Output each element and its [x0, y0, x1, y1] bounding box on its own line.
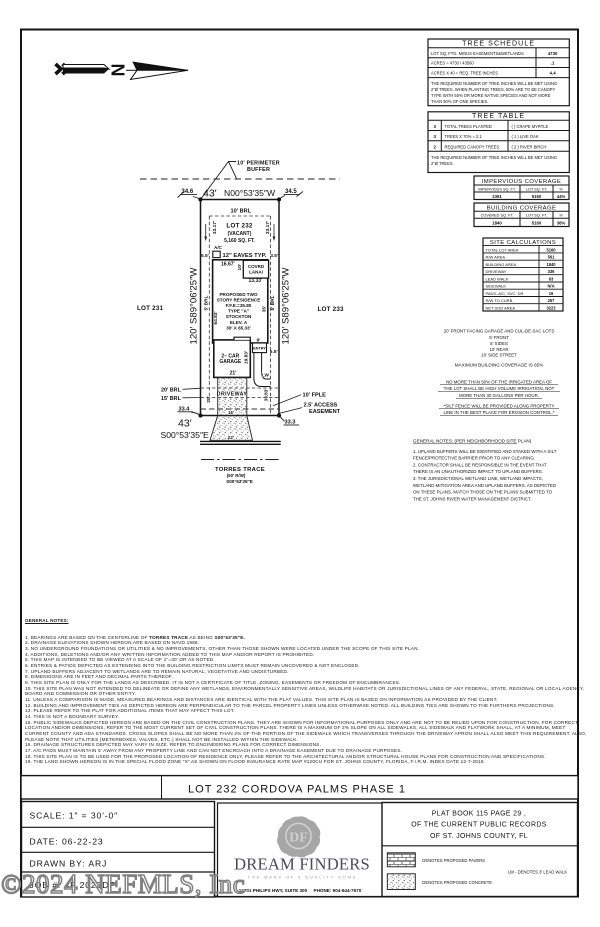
svg-text:THE REQUIRED NUMBER OF TREE IN: THE REQUIRED NUMBER OF TREE INCHES WILL … [431, 81, 557, 86]
svg-text:TREE TABLE: TREE TABLE [472, 113, 525, 120]
svg-text:STORY RESIDENCE: STORY RESIDENCE [217, 297, 261, 302]
svg-text:LINE IN THE BEST PLACE FOR ERO: LINE IN THE BEST PLACE FOR EROSION CONTR… [443, 410, 554, 415]
svg-text:DREAM FINDERS: DREAM FINDERS [234, 855, 370, 874]
svg-text:LOT 232 CORDOVA PALMS PHASE 1: LOT 232 CORDOVA PALMS PHASE 1 [188, 784, 406, 796]
svg-text:THE LOT SHALL BE HIGH VOLUME I: THE LOT SHALL BE HIGH VOLUME IRRIGATION,… [444, 386, 555, 391]
svg-text:ON THESE PLANS, MATCH THOSE ON: ON THESE PLANS, MATCH THOSE ON THE PLANS… [413, 490, 553, 495]
svg-text:16.67′: 16.67′ [221, 262, 236, 268]
svg-text:10′ REAR: 10′ REAR [489, 347, 508, 352]
svg-text:10′ SIDE STREET: 10′ SIDE STREET [481, 353, 517, 358]
svg-text:19.83′: 19.83′ [243, 350, 249, 364]
svg-text:DENOTES PROPOSED CONCRETE: DENOTES PROPOSED CONCRETE [422, 880, 492, 885]
svg-text:F.F.E.=35.80: F.F.E.=35.80 [226, 303, 252, 308]
svg-text:R/W TO CURB.: R/W TO CURB. [486, 298, 514, 303]
svg-text:ACRES X 40 = REQ. TREE INCHES: ACRES X 40 = REQ. TREE INCHES [431, 70, 498, 75]
svg-text:(50′ R/W): (50′ R/W) [227, 473, 246, 478]
svg-text:4730: 4730 [548, 51, 558, 56]
svg-text:DRIVEWAY: DRIVEWAY [486, 269, 507, 274]
svg-text:OF ST. JOHNS COUNTY, FL: OF ST. JOHNS COUNTY, FL [430, 833, 528, 840]
svg-text:16′: 16′ [228, 410, 234, 415]
svg-text:64.83′: 64.83′ [213, 311, 219, 325]
svg-text:A/C: A/C [214, 245, 223, 250]
svg-text:BUILDING COVERAGE: BUILDING COVERAGE [487, 206, 557, 212]
svg-text:(VACANT): (VACANT) [228, 231, 252, 237]
svg-text:TREES X 70% = 2.1: TREES X 70% = 2.1 [445, 134, 483, 139]
svg-text:5′ BRL: 5′ BRL [270, 295, 276, 310]
svg-text:THE REQUIRED NUMBER OF TREE IN: THE REQUIRED NUMBER OF TREE INCHES WILL … [431, 155, 557, 160]
svg-text:IMPERVIOUS SQ. FT.: IMPERVIOUS SQ. FT. [478, 188, 516, 192]
svg-text:120′ S89°06′25″W: 120′ S89°06′25″W [189, 267, 200, 345]
svg-text:DRAWN BY: ARJ: DRAWN BY: ARJ [30, 858, 108, 868]
svg-text:MORE THAN 30 GALLONS PER HOUR.: MORE THAN 30 GALLONS PER HOUR. [459, 393, 539, 398]
svg-text:5′ BRL: 5′ BRL [203, 295, 209, 310]
svg-text:N: N [108, 64, 128, 77]
svg-text:3. THE JURISDICTIONAL WETLAND: 3. THE JURISDICTIONAL WETLAND LINE, WETL… [413, 476, 543, 481]
svg-text:TOTAL TREES PLANTED: TOTAL TREES PLANTED [445, 124, 492, 129]
svg-text:33.17′: 33.17′ [212, 220, 218, 234]
svg-text:36%: 36% [557, 221, 566, 226]
svg-text:DF: DF [289, 831, 308, 846]
svg-text:257: 257 [548, 298, 556, 303]
svg-text:35′: 35′ [261, 305, 267, 312]
svg-text:2.5′ ACCESS: 2.5′ ACCESS [304, 403, 338, 409]
svg-text:STOCKTON: STOCKTON [226, 314, 252, 319]
svg-text:2. CONTRACTOR SHALL BE RESPONS: 2. CONTRACTOR SHALL BE RESPONSIBLE IN TH… [413, 462, 547, 467]
svg-text:561: 561 [548, 255, 556, 260]
svg-text:2″Ø TREES. WHEN PLANTING TREES: 2″Ø TREES. WHEN PLANTING TREES, 50% ARE … [431, 87, 555, 92]
svg-text:10′ FPLE: 10′ FPLE [303, 392, 327, 398]
svg-text:1. UPLAND BUFFERS WILL BE IDEN: 1. UPLAND BUFFERS WILL BE IDENTIFIED AND… [413, 449, 557, 454]
svg-text:LOT 232: LOT 232 [226, 223, 253, 230]
svg-text:LANAI: LANAI [249, 269, 263, 274]
svg-text:5160: 5160 [532, 221, 542, 226]
svg-text:*SILT FENCE WILL BE PROVIDED A: *SILT FENCE WILL BE PROVIDED ALONG PROPE… [444, 403, 555, 408]
svg-text:LOT 231: LOT 231 [137, 305, 164, 312]
svg-text:63: 63 [549, 277, 554, 282]
svg-text:THERE IS AN UNAUTHORIZED IMPAC: THERE IS AN UNAUTHORIZED IMPACT TO UPLAN… [413, 469, 543, 474]
svg-text:PROPOSED TWO: PROPOSED TWO [219, 292, 257, 297]
svg-text:43′: 43′ [203, 188, 217, 200]
svg-text:120′ S89°06′25″W: 120′ S89°06′25″W [281, 267, 292, 345]
svg-text:3.5′: 3.5′ [270, 253, 279, 259]
svg-text:LOT SQ. FT.: LOT SQ. FT. [526, 188, 547, 192]
svg-text:LW: LW [262, 373, 270, 378]
svg-text:16: 16 [549, 291, 554, 296]
svg-text:COVRD: COVRD [248, 264, 265, 269]
svg-text:DRIVEWAY: DRIVEWAY [217, 392, 248, 398]
svg-text:2361: 2361 [492, 194, 502, 199]
svg-text:NO MORE THAN 50% OF THE IRRIGA: NO MORE THAN 50% OF THE IRRIGATED AREA O… [446, 379, 552, 384]
svg-text:LOT 233: LOT 233 [318, 306, 345, 313]
svg-text:BUILDING AREA: BUILDING AREA [486, 262, 517, 267]
svg-text:WETLAND MITIGATION AREA AND UP: WETLAND MITIGATION AREA AND UPLAND BUFFE… [413, 483, 556, 488]
svg-text:THE ST. JOHNS RIVER WATER MANA: THE ST. JOHNS RIVER WATER MANAGEMENT DIS… [413, 496, 531, 501]
svg-text:14701 PHILIPS HWY, SUITE 300: 14701 PHILIPS HWY, SUITE 300 PHONE: 904-… [239, 888, 362, 893]
svg-text:PLAT BOOK 115 PAGE 29 ,: PLAT BOOK 115 PAGE 29 , [432, 811, 526, 818]
svg-text:SIDEWALK: SIDEWALK [486, 284, 507, 289]
svg-text:THAN 50% OF ONE SPECIES.: THAN 50% OF ONE SPECIES. [431, 99, 488, 104]
svg-text:S00°53′35″E: S00°53′35″E [161, 430, 209, 440]
svg-text:20′ FRONT FACING GARAGE AND CU: 20′ FRONT FACING GARAGE AND CUL-DE-SAC L… [444, 329, 555, 334]
svg-text:5.5′: 5.5′ [270, 349, 279, 355]
svg-text:TOTAL LOT AREA: TOTAL LOT AREA [486, 247, 519, 252]
svg-text:NET SOD AREA: NET SOD AREA [486, 306, 516, 311]
svg-text:IMPERVIOUS COVERAGE: IMPERVIOUS COVERAGE [482, 179, 562, 185]
svg-text:BUFFER: BUFFER [247, 167, 270, 173]
svg-text:34.5: 34.5 [285, 189, 297, 195]
svg-text:.1: .1 [551, 61, 555, 66]
svg-text:ELEV. A: ELEV. A [230, 320, 248, 325]
svg-text:FENCE/PROTECTIVE BARRIER PRIOR: FENCE/PROTECTIVE BARRIER PRIOR TO ANY CL… [413, 456, 535, 461]
svg-text:SITE CALCULATIONS: SITE CALCULATIONS [490, 240, 556, 246]
svg-text:21′: 21′ [230, 371, 238, 377]
svg-text:5,160 SQ. FT.: 5,160 SQ. FT. [224, 238, 255, 244]
svg-text:33.17′: 33.17′ [265, 220, 271, 234]
svg-text:2″Ø TREES.: 2″Ø TREES. [431, 161, 454, 166]
svg-text:4.4: 4.4 [550, 70, 557, 75]
svg-text:LOT SQ. FT.: LOT SQ. FT. [526, 214, 547, 218]
svg-text:ACRES = 4730 / 43560: ACRES = 4730 / 43560 [431, 61, 474, 66]
svg-text:12″ EAVES TYP.: 12″ EAVES TYP. [223, 253, 267, 259]
svg-text:TREE SCHEDULE: TREE SCHEDULE [462, 41, 535, 48]
svg-text:TYPE WITH 50% OR MORE NATIVE S: TYPE WITH 50% OR MORE NATIVE SPECIES AND… [431, 93, 551, 98]
svg-text:30′ X 65.33′: 30′ X 65.33′ [226, 326, 251, 331]
svg-text:THE MARK OF A QUALITY HOME: THE MARK OF A QUALITY HOME [248, 875, 358, 880]
svg-text:ENTRY: ENTRY [253, 347, 266, 351]
svg-text:33.83′: 33.83′ [264, 388, 269, 401]
svg-text:DENOTES PROPOSED PAVERS: DENOTES PROPOSED PAVERS [422, 858, 485, 863]
svg-text:1840: 1840 [492, 221, 502, 226]
svg-text:10′ BRL: 10′ BRL [231, 209, 252, 215]
svg-text:S00°53′35″E: S00°53′35″E [226, 479, 253, 484]
svg-text:N00°53′35″W: N00°53′35″W [224, 188, 276, 198]
svg-text:REQUIRED CANOPY TREES: REQUIRED CANOPY TREES [445, 144, 500, 149]
svg-text:N/A: N/A [547, 284, 554, 289]
svg-text:15′ BRL: 15′ BRL [161, 396, 182, 402]
svg-text:( 2 ) RIVER BIRCH: ( 2 ) RIVER BIRCH [512, 144, 547, 149]
svg-text:5160: 5160 [532, 194, 542, 199]
svg-text:DATE: 06-22-23: DATE: 06-22-23 [30, 837, 104, 847]
svg-text:20′: 20′ [206, 395, 211, 402]
svg-text:COVERED SQ. FT.: COVERED SQ. FT. [481, 214, 514, 218]
svg-text:5.5′: 5.5′ [201, 253, 210, 259]
svg-text:R/W AREA: R/W AREA [486, 255, 506, 260]
svg-text:13.33′: 13.33′ [249, 278, 264, 284]
svg-text:LEAD WALK: LEAD WALK [486, 277, 509, 282]
svg-text:LW - DENOTES 3′ LEAD WALK: LW - DENOTES 3′ LEAD WALK [508, 869, 567, 874]
svg-text:TYPE ″A″: TYPE ″A″ [228, 309, 250, 314]
svg-text:OF THE CURRENT PUBLIC RECORDS: OF THE CURRENT PUBLIC RECORDS [411, 822, 546, 829]
svg-text:3223: 3223 [546, 306, 556, 311]
svg-text:GARAGE: GARAGE [219, 359, 242, 365]
svg-text:10′: 10′ [237, 263, 243, 270]
svg-text:5160: 5160 [546, 247, 556, 252]
svg-text:PADS–A/C, SVC. DR.: PADS–A/C, SVC. DR. [486, 291, 525, 296]
svg-text:1840: 1840 [546, 262, 556, 267]
svg-text:MAXIMUM BUILDING COVERAGE IS 6: MAXIMUM BUILDING COVERAGE IS 65% [455, 362, 544, 367]
svg-text:EASEMENT: EASEMENT [309, 409, 341, 415]
svg-text:( ) CRAPE MYRTLE: ( ) CRAPE MYRTLE [512, 124, 549, 129]
svg-text:SCALE: 1″ = 30′-0″: SCALE: 1″ = 30′-0″ [30, 811, 119, 821]
svg-text:5′ SIDES: 5′ SIDES [490, 341, 508, 346]
svg-text:22′: 22′ [228, 435, 235, 441]
svg-text:20′ BRL: 20′ BRL [161, 387, 182, 393]
svg-text:43′: 43′ [178, 418, 192, 430]
svg-text:LOT SQ. FTG. MINUS EASEMENTS&W: LOT SQ. FTG. MINUS EASEMENTS&WETLANDS [431, 51, 524, 56]
svg-text:( 1 ) LIVE OAK: ( 1 ) LIVE OAK [512, 134, 539, 139]
svg-text:44%: 44% [557, 194, 566, 199]
svg-text:336: 336 [548, 269, 556, 274]
svg-text:5′ FRONT: 5′ FRONT [489, 335, 509, 340]
svg-text:GENERAL NOTES: (PER NEIGHBORHO: GENERAL NOTES: (PER NEIGHBORHOOD SITE PL… [413, 438, 532, 443]
svg-text:10′ PERIMETER: 10′ PERIMETER [237, 161, 280, 167]
